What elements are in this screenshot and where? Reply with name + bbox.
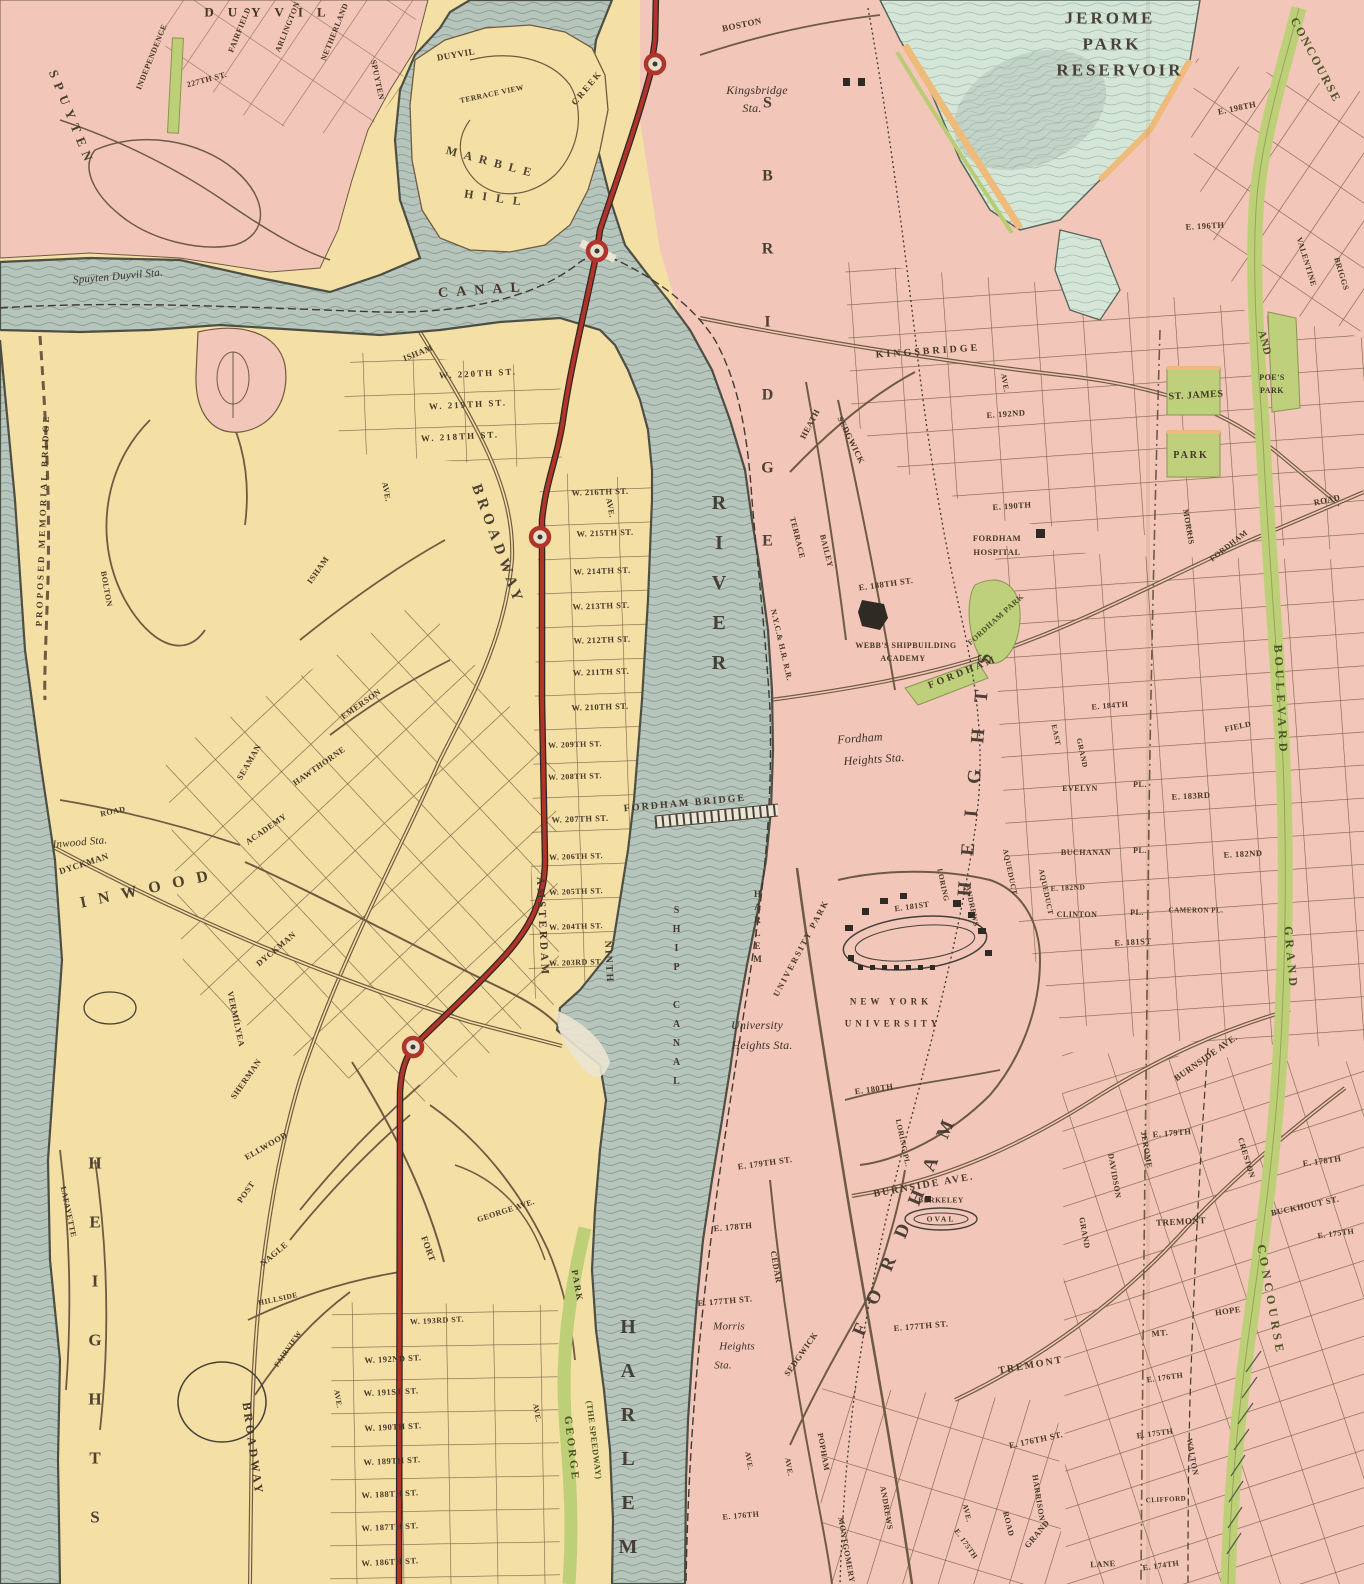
label-w215th: W. 215TH ST. [576, 528, 633, 538]
label-university: UNIVERSITY [845, 1020, 942, 1029]
label-ave-bottom-2: AVE. [532, 1403, 543, 1423]
label-e183rd: E. 183RD [1171, 791, 1210, 802]
label-webbs-academy-1: WEBB'S SHIPBUILDING [855, 642, 956, 650]
label-kingsbridge-station-1: Kingsbridge [726, 84, 788, 96]
vintage-map-canvas: DUYVIL SPUYTEN INDEPENDENCE FAIRFIELD AR… [0, 0, 1364, 1584]
poes-park [1268, 312, 1300, 412]
label-w210th: W. 210TH ST. [571, 702, 628, 712]
label-river: RIVER [709, 492, 729, 692]
label-berkeley-oval: OVAL [927, 1215, 956, 1223]
label-cameron-pl: CAMERON PL. [1169, 908, 1224, 915]
label-fordham-hospital-2: HOSPITAL [973, 548, 1020, 557]
label-w212th: W. 212TH ST. [573, 635, 630, 645]
label-berkeley: BERKELEY [918, 1196, 964, 1204]
label-kingsbridge-spread: SBRIDGE [759, 95, 775, 606]
label-ave-south-3: AVE. [784, 1457, 795, 1477]
label-w216th: W. 216TH ST. [571, 487, 628, 497]
label-evelyn-pl: PL. [1133, 781, 1147, 789]
label-evelyn: EVELYN [1062, 785, 1098, 793]
label-new-york: NEW YORK [850, 998, 932, 1007]
label-jerome: JEROME [1065, 10, 1156, 27]
label-duyvil-district: DUYVIL [204, 6, 339, 19]
label-ave-south-2: AVE. [744, 1451, 755, 1471]
label-university-heights-sta-1: University [731, 1019, 783, 1031]
label-fordham-heights-sta-1: Fordham [837, 730, 883, 745]
label-clinton: CLINTON [1057, 911, 1098, 919]
label-poes: POE'S [1259, 374, 1285, 382]
label-w214th: W. 214TH ST. [573, 566, 630, 576]
label-jerome-park: PARK [1083, 36, 1142, 53]
label-morris-heights-sta-1: Morris [713, 1322, 745, 1333]
label-ninth-ave: NINTH [602, 940, 614, 983]
label-morris-heights-sta-2: Heights [719, 1342, 755, 1353]
label-w211th: W. 211TH ST. [573, 667, 630, 677]
label-heights-west-spread: HEIGHTS [87, 1154, 104, 1567]
label-lane: LANE [1090, 1559, 1116, 1569]
label-fordham-hospital-1: FORDHAM [973, 534, 1021, 543]
label-webbs-academy-2: ACADEMY [880, 655, 925, 663]
label-ave-kingsbridge: AVE. [1000, 373, 1011, 393]
label-harlem-small: HARLEM [753, 889, 762, 967]
label-harlem-big: HARLEM [618, 1316, 638, 1580]
label-st-james-park: PARK [1173, 451, 1209, 461]
label-buchanan: BUCHANAN [1061, 849, 1111, 857]
label-ave-bottom-1: AVE. [333, 1389, 344, 1409]
label-e182nd: E. 182ND [1223, 849, 1262, 860]
label-mt: MT. [1151, 1328, 1168, 1338]
label-ship-canal: SHIP CANAL [671, 905, 681, 1095]
label-e182nd-west: E. 182ND [1050, 883, 1085, 892]
label-e196th: E. 196TH [1185, 221, 1224, 232]
label-university-heights-sta-2: Heights Sta. [731, 1039, 792, 1051]
label-w213th: W. 213TH ST. [572, 601, 629, 611]
label-buchanan-pl: PL. [1133, 847, 1147, 855]
label-morris-heights-sta-3: Sta. [714, 1361, 732, 1372]
label-clinton-pl: PL. [1130, 909, 1144, 917]
label-poes-park: PARK [1260, 387, 1284, 395]
label-w207th: W. 207TH ST. [551, 814, 608, 824]
paper-fold-crease [1146, 0, 1150, 1584]
map-artwork [0, 0, 1364, 1584]
label-reservoir: RESERVOIR [1056, 62, 1183, 79]
